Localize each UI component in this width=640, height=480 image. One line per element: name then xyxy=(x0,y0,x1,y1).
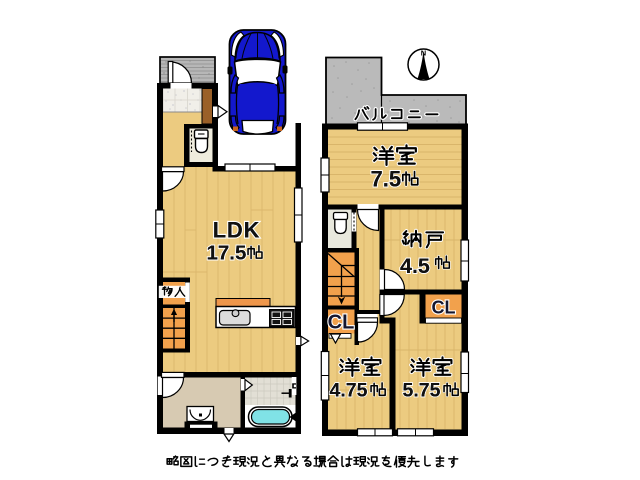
svg-text:CL: CL xyxy=(328,312,355,334)
svg-text:7.5: 7.5 xyxy=(371,167,402,192)
svg-text:N: N xyxy=(421,49,426,58)
svg-text:4.5: 4.5 xyxy=(400,254,430,278)
svg-text:4.75: 4.75 xyxy=(330,380,368,402)
svg-text:5.75: 5.75 xyxy=(403,380,441,402)
svg-text:LDK: LDK xyxy=(213,218,261,243)
svg-text:17.5: 17.5 xyxy=(207,242,247,265)
svg-text:CL: CL xyxy=(432,298,456,318)
